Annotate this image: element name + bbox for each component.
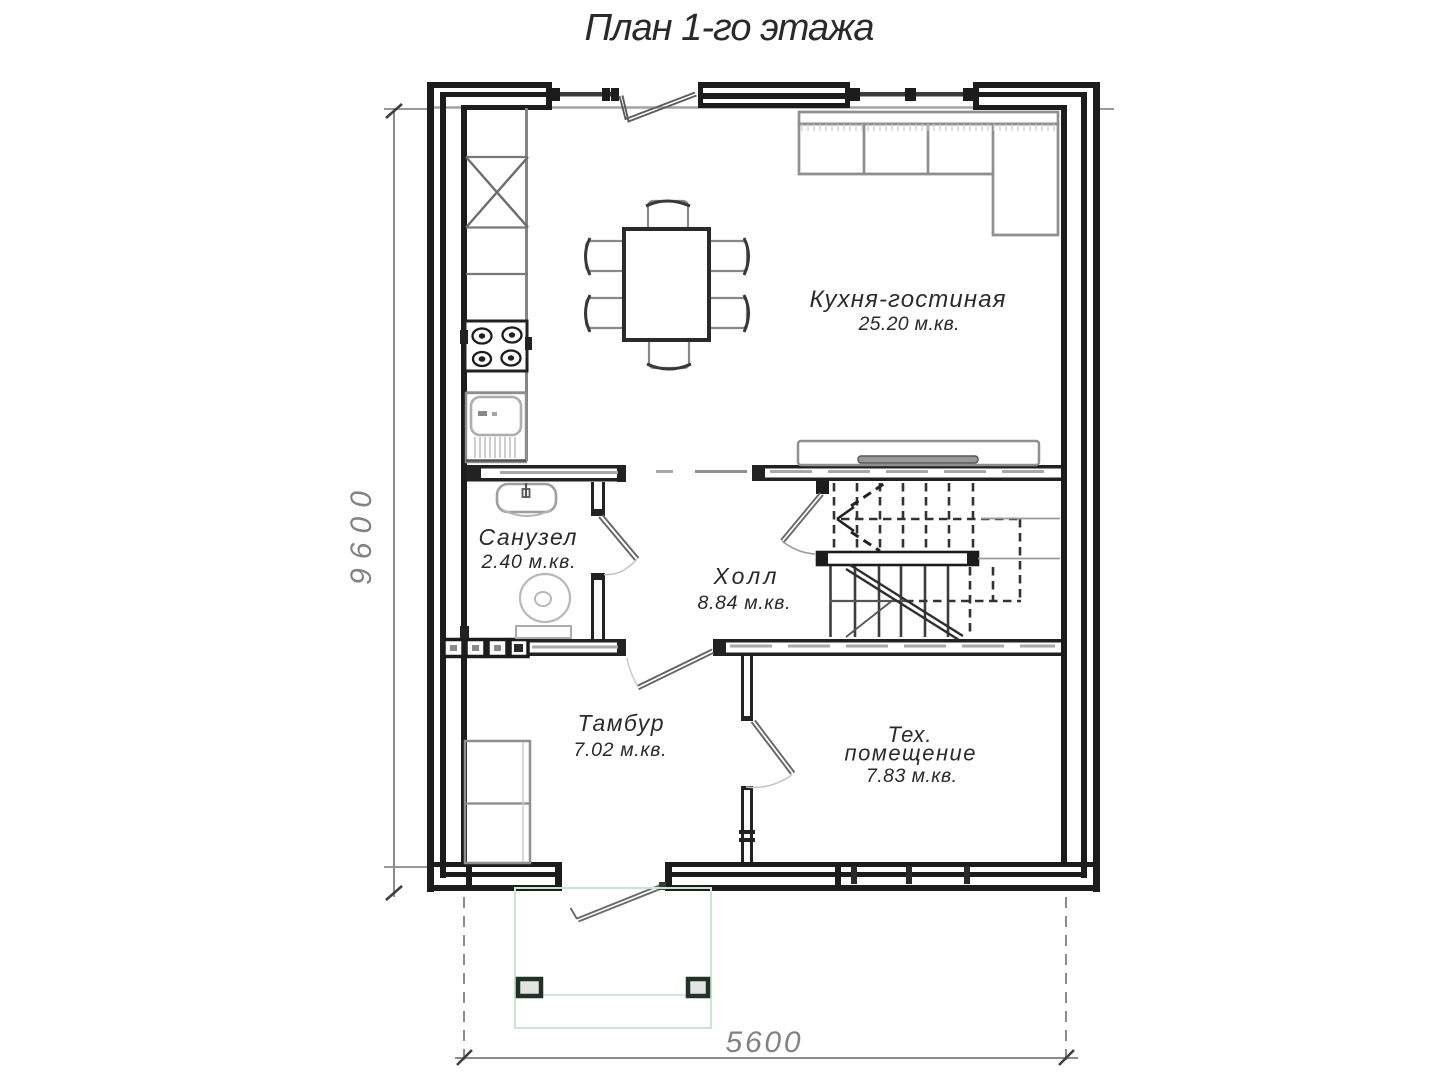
- svg-text:Санузел: Санузел: [479, 524, 577, 550]
- svg-text:7.83 м.кв.: 7.83 м.кв.: [866, 765, 957, 787]
- svg-text:2.40 м.кв.: 2.40 м.кв.: [481, 551, 576, 573]
- svg-text:Тамбур: Тамбур: [578, 710, 664, 736]
- svg-text:8.84 м.кв.: 8.84 м.кв.: [698, 592, 791, 614]
- svg-text:помещение: помещение: [845, 741, 976, 766]
- svg-text:План 1-го этажа: План 1-го этажа: [585, 7, 875, 49]
- svg-text:7.02 м.кв.: 7.02 м.кв.: [574, 739, 667, 761]
- svg-text:25.20 м.кв.: 25.20 м.кв.: [858, 313, 960, 335]
- svg-text:Кухня-гостиная: Кухня-гостиная: [810, 286, 1006, 313]
